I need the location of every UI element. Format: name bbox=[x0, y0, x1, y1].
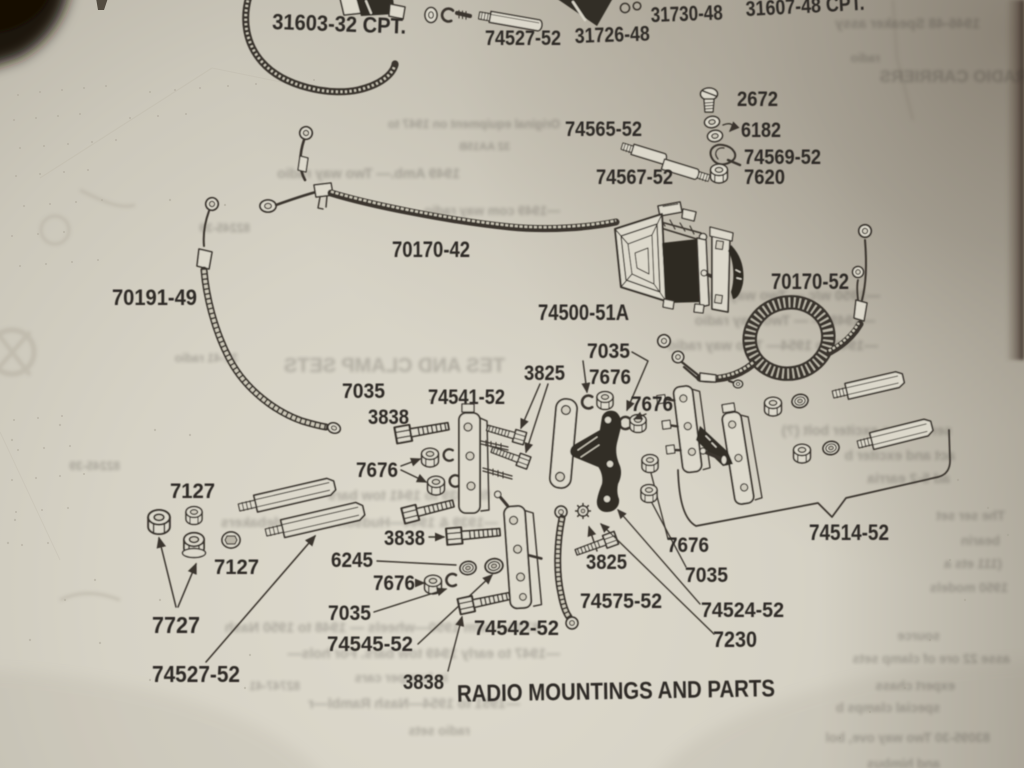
svg-text:TES AND CLAMP SETS: TES AND CLAMP SETS bbox=[284, 355, 505, 377]
svg-text:70191-49: 70191-49 bbox=[112, 285, 197, 310]
svg-text:special clamps b: special clamps b bbox=[836, 700, 940, 715]
svg-text:31603-32 CPT.: 31603-32 CPT. bbox=[272, 9, 407, 39]
svg-text:74527-52: 74527-52 bbox=[485, 27, 561, 50]
svg-text:7620: 7620 bbox=[744, 166, 785, 189]
svg-text:source: source bbox=[897, 628, 940, 643]
svg-text:The ser set: The ser set bbox=[936, 508, 1005, 523]
svg-text:3838: 3838 bbox=[368, 406, 409, 429]
svg-text:7035: 7035 bbox=[328, 602, 371, 625]
svg-text:expert chass: expert chass bbox=[876, 678, 956, 693]
svg-text:74575-52: 74575-52 bbox=[580, 590, 662, 613]
svg-text:1950 models: 1950 models bbox=[930, 580, 1008, 595]
svg-text:74514-52: 74514-52 bbox=[809, 520, 889, 545]
svg-text:7676: 7676 bbox=[373, 572, 415, 595]
svg-text:74541-52: 74541-52 bbox=[428, 386, 505, 409]
svg-text:7727: 7727 bbox=[152, 612, 200, 638]
svg-text:7676: 7676 bbox=[631, 393, 673, 416]
svg-text:3838: 3838 bbox=[403, 671, 444, 694]
svg-text:31726-48: 31726-48 bbox=[574, 22, 650, 48]
svg-text:6245: 6245 bbox=[331, 549, 373, 572]
svg-text:1946-48 Speaker assy: 1946-48 Speaker assy bbox=[835, 15, 980, 31]
svg-text:7035: 7035 bbox=[685, 564, 728, 587]
svg-text:7676: 7676 bbox=[589, 366, 631, 389]
svg-text:7127: 7127 bbox=[170, 480, 215, 503]
svg-text:7676: 7676 bbox=[667, 534, 709, 557]
svg-text:radio sets: radio sets bbox=[409, 723, 470, 738]
svg-text:82245-39: 82245-39 bbox=[69, 459, 120, 473]
svg-text:70170-42: 70170-42 bbox=[392, 237, 470, 262]
svg-text:74567-52: 74567-52 bbox=[596, 166, 673, 189]
svg-text:3825: 3825 bbox=[524, 362, 565, 385]
svg-text:—1949 — — Two way radio: —1949 — — Two way radio bbox=[695, 312, 875, 328]
svg-text:7676: 7676 bbox=[356, 459, 398, 482]
svg-text:Original equipment on 1947 to: Original equipment on 1947 to bbox=[388, 117, 560, 131]
svg-text:7127: 7127 bbox=[214, 556, 259, 579]
svg-text:bearin: bearin bbox=[961, 533, 1000, 548]
svg-text:70170-52: 70170-52 bbox=[771, 269, 849, 294]
svg-text:7230: 7230 bbox=[713, 627, 757, 652]
svg-text:asse 22 ore of clamp sets: asse 22 ore of clamp sets bbox=[852, 651, 1010, 666]
svg-text:radio: radio bbox=[851, 51, 880, 65]
svg-text:74545-52: 74545-52 bbox=[327, 633, 413, 656]
svg-text:7035: 7035 bbox=[342, 380, 385, 403]
svg-text:6182: 6182 bbox=[741, 119, 781, 142]
svg-text:74500-51A: 74500-51A bbox=[538, 300, 629, 325]
svg-text:82245-39: 82245-39 bbox=[199, 221, 250, 235]
svg-text:7035: 7035 bbox=[587, 340, 630, 363]
svg-text:32 AA15B: 32 AA15B bbox=[459, 141, 510, 153]
svg-text:3838: 3838 bbox=[384, 527, 425, 550]
svg-text:RADIO CARRIERS: RADIO CARRIERS bbox=[880, 67, 1024, 86]
svg-text:act and exciter b: act and exciter b bbox=[845, 447, 956, 463]
svg-text:74542-52: 74542-52 bbox=[474, 617, 559, 640]
svg-text:82747-41: 82747-41 bbox=[249, 679, 300, 693]
svg-text:2672: 2672 bbox=[737, 88, 778, 111]
svg-text:3825: 3825 bbox=[586, 551, 627, 574]
svg-text:31730-48: 31730-48 bbox=[650, 1, 723, 27]
svg-text:RADIO MOUNTINGS AND PARTS: RADIO MOUNTINGS AND PARTS bbox=[457, 675, 775, 708]
svg-text:83095-30 Two way ove, bol: 83095-30 Two way ove, bol bbox=[826, 730, 991, 745]
svg-text:and himbus: and himbus bbox=[867, 756, 940, 768]
svg-text:74565-52: 74565-52 bbox=[565, 118, 642, 141]
svg-text:74527-52: 74527-52 bbox=[152, 661, 240, 687]
svg-text:74524-52: 74524-52 bbox=[701, 599, 784, 622]
svg-text:(111 ets a: (111 ets a bbox=[943, 556, 1002, 571]
